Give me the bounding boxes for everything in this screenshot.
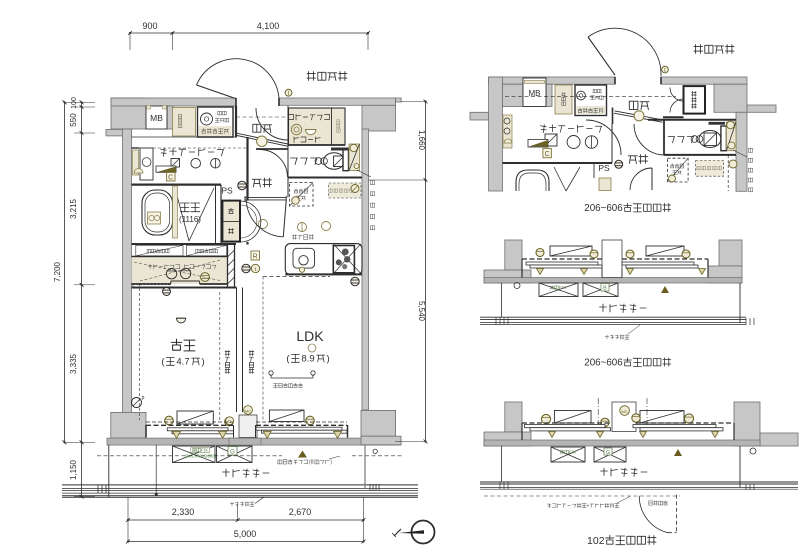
svg-text:4.7: 4.7 <box>176 356 189 367</box>
svg-text:MB: MB <box>529 89 541 98</box>
svg-text:102: 102 <box>587 535 605 547</box>
svg-text:MB: MB <box>150 113 163 123</box>
svg-text:(: ( <box>161 356 165 367</box>
svg-text:3,335: 3,335 <box>69 353 78 374</box>
svg-text:FIX: FIX <box>559 285 566 290</box>
svg-text:900: 900 <box>142 21 157 31</box>
svg-text:4,100: 4,100 <box>257 21 280 31</box>
svg-text:(: ( <box>286 353 290 364</box>
svg-text:G: G <box>230 450 235 456</box>
svg-text:206~606: 206~606 <box>584 203 623 214</box>
svg-text:FIX: FIX <box>569 450 576 455</box>
svg-text:C: C <box>168 175 173 182</box>
svg-text:FIX: FIX <box>201 448 208 453</box>
svg-text:PS: PS <box>598 163 610 173</box>
svg-text:1,660: 1,660 <box>417 130 426 151</box>
svg-text:): ) <box>330 460 332 466</box>
svg-text:G: G <box>606 450 610 456</box>
svg-text:p: p <box>142 395 145 401</box>
svg-text:206~606: 206~606 <box>584 358 623 369</box>
svg-text:MC: MC <box>621 409 627 414</box>
svg-text:+: + <box>587 503 590 509</box>
svg-text:5,000: 5,000 <box>234 529 257 539</box>
svg-text:(W1700H2030): (W1700H2030) <box>185 454 217 459</box>
svg-text:): ) <box>327 353 330 364</box>
svg-text:7,200: 7,200 <box>53 261 62 282</box>
svg-text:(8: (8 <box>309 460 314 466</box>
svg-text:C: C <box>545 151 550 158</box>
svg-text:): ) <box>202 356 205 367</box>
svg-text:8.9: 8.9 <box>301 353 314 364</box>
svg-text:3,215: 3,215 <box>69 198 78 219</box>
svg-text:2,330: 2,330 <box>172 507 195 517</box>
svg-text:R: R <box>253 254 258 261</box>
svg-text:MC: MC <box>245 408 251 413</box>
svg-text:G: G <box>228 419 232 424</box>
svg-text:100: 100 <box>71 97 78 109</box>
svg-text:LDK: LDK <box>296 328 324 344</box>
svg-text:5,540: 5,540 <box>417 301 426 322</box>
svg-text:PS: PS <box>221 186 233 196</box>
svg-text:2,670: 2,670 <box>289 507 312 517</box>
svg-text:1,150: 1,150 <box>69 459 78 480</box>
svg-text:550: 550 <box>69 113 78 127</box>
svg-text:B: B <box>603 286 607 292</box>
